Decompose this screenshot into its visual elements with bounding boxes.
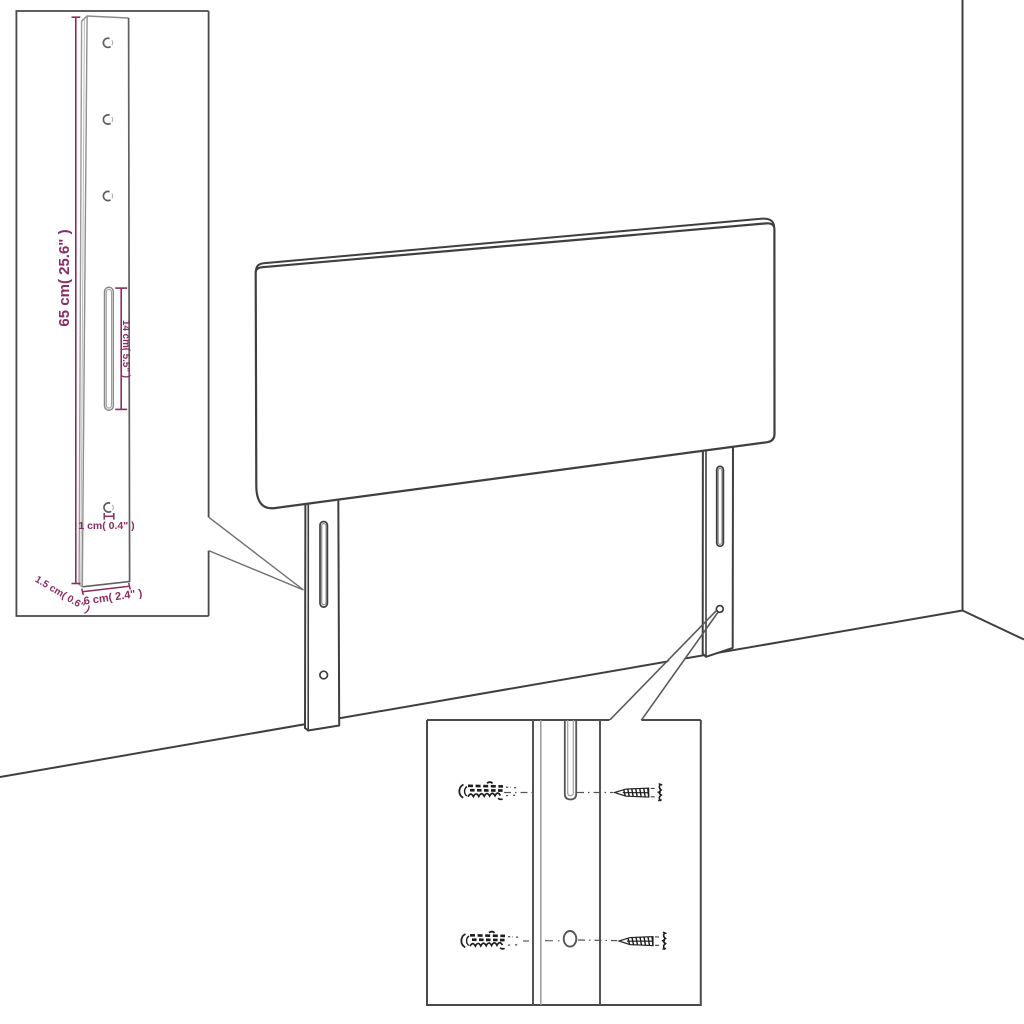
svg-text:1 cm( 0.4" ): 1 cm( 0.4" ) bbox=[78, 520, 134, 532]
svg-text:65 cm( 25.6" ): 65 cm( 25.6" ) bbox=[56, 229, 73, 326]
svg-text:14 cm( 5.5" ): 14 cm( 5.5" ) bbox=[120, 320, 131, 378]
